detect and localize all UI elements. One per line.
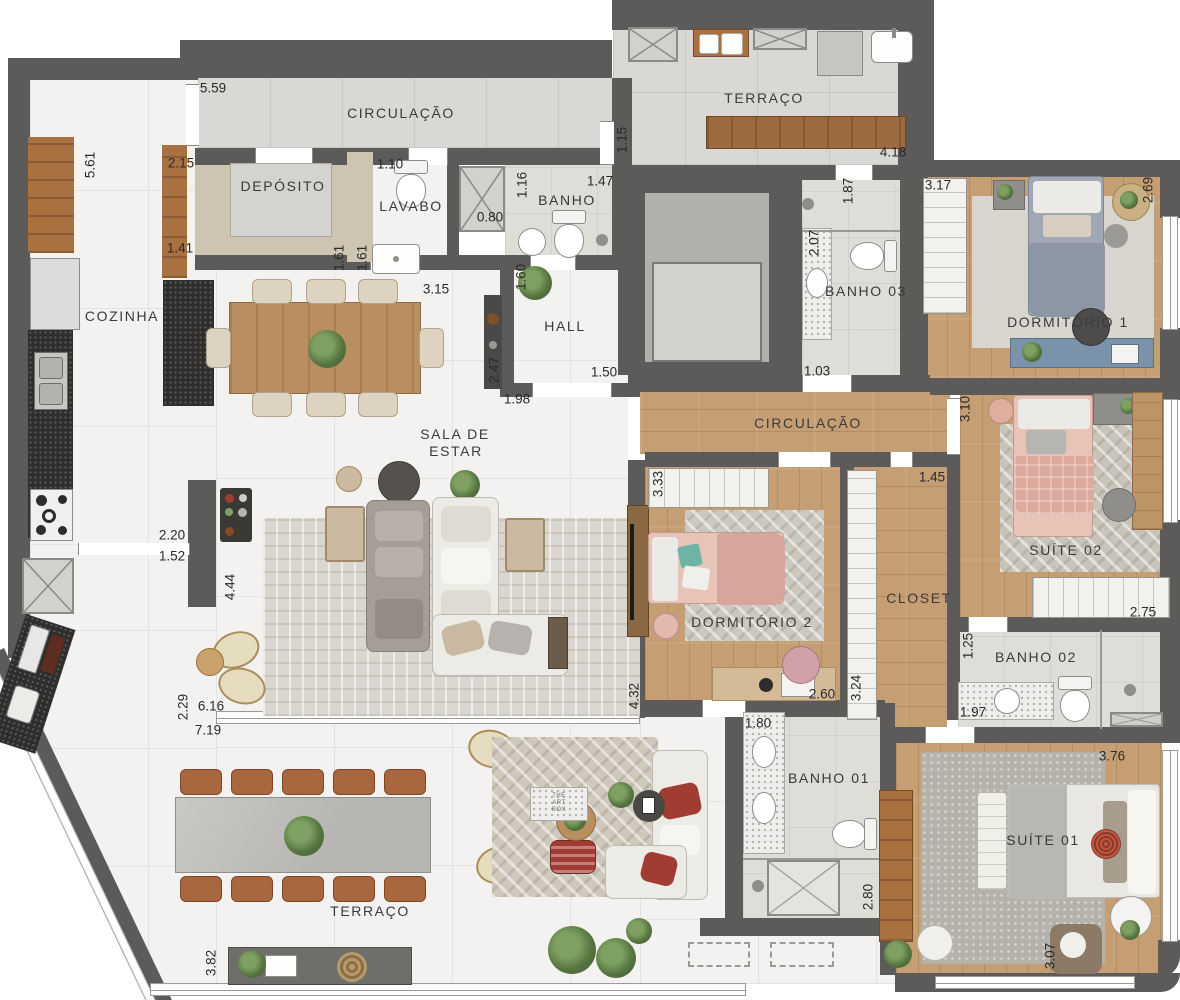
dining-chair [419,328,444,368]
wall [947,455,960,720]
room-label-sala-line2: ESTAR [429,443,483,459]
terrace-table-plant-icon [284,816,324,856]
bed-dormitorio2 [648,532,784,604]
dim-4-18: 4.18 [880,145,906,160]
dim-1-52: 1.52 [159,549,185,564]
room-label-terraco-top: TERRAÇO [724,90,804,106]
dim-1-25: 1.25 [961,633,976,659]
lounge-side-table [196,648,224,676]
banho01-counter [743,712,785,854]
red-pillow [639,850,679,887]
living-plant-icon [450,470,480,500]
room-label-deposito: DEPÓSITO [241,178,326,194]
room-label-lavabo: LAVABO [379,198,443,214]
art-box-text: THE ART BOX [545,793,573,815]
room-label-suite02: SUÍTE 02 [1029,542,1103,558]
wall [628,375,802,392]
wall [612,383,640,397]
wall [188,480,216,607]
wall [500,262,514,383]
shower-banho01 [767,860,840,916]
suite01-plant-icon [884,940,912,968]
square-side-table [325,506,365,562]
toilet-banho [554,224,584,258]
planter-dashed [688,942,750,967]
bed-suite02 [1013,395,1093,537]
toilet-tank [864,818,877,850]
bed-pillows [1033,181,1101,213]
door-suite01 [925,727,975,743]
wall [448,148,612,165]
toilet-banho03 [850,242,884,270]
dim-2-29: 2.29 [176,694,191,720]
dim-2-47: 2.47 [487,357,502,383]
dim-1-97: 1.97 [960,705,986,720]
shower-glass-line [1100,630,1102,729]
wardrobe-dormitorio2 [648,468,769,508]
terrace-plant-icon [596,938,636,978]
dim-2-20: 2.20 [159,528,185,543]
wall [1160,328,1180,400]
window-suite01 [1162,750,1178,942]
suite01-plant-icon [1120,920,1140,940]
dim-1-80: 1.80 [745,716,771,731]
door-circulacao-cozinha [186,84,199,146]
dim-0-80: 0.80 [477,210,503,225]
laundry-appliance [817,31,863,76]
wall [180,40,612,78]
dim-6-16: 6.16 [198,699,224,714]
wall [700,918,896,936]
shower-head-icon [752,880,764,892]
shaft-x-icon [628,27,678,62]
dining-table-plant-icon [308,330,346,368]
striped-red-pillow [550,840,596,874]
room-label-banho01: BANHO 01 [788,770,870,786]
desk-chair-suite02 [1102,488,1136,522]
decor-panel [220,488,252,542]
art-box-console: THE ART BOX [530,787,588,821]
dim-1-10: 1.10 [377,157,403,172]
terrace-chair [282,876,324,902]
bed-cushion [1043,215,1091,237]
photo-side-table [633,790,665,822]
dim-2-15: 2.15 [168,156,194,171]
shower-head-icon [1124,684,1136,696]
chaise-sofa-gray [366,500,430,652]
tv-icon [630,524,634,620]
dining-chair [252,392,292,417]
pouf-pink [652,612,680,640]
dim-4-32: 4.32 [627,683,642,709]
bed-pillows [1018,399,1090,429]
planter-dashed [770,942,834,967]
dim-2-75: 2.75 [1130,605,1156,620]
kitchen-tall-cabinet [28,137,74,253]
s ideboard-plant-icon [238,950,266,978]
toilet-tank [552,210,586,224]
terrace-plant-icon [626,918,652,944]
room-label-circulacao-mid: CIRCULAÇÃO [754,415,862,431]
room-label-banho03: BANHO 03 [825,283,907,299]
dim-3-15: 3.15 [423,282,449,297]
dim-3-07: 3.07 [1043,943,1058,969]
dim-3-33: 3.33 [651,471,666,497]
terrace-chair [231,769,273,795]
dim-1-41: 1.41 [167,241,193,256]
bed-blanket-plaid [1014,456,1094,514]
window-suite01-bottom [935,976,1135,989]
armchair-suite01 [1050,924,1102,974]
room-label-closet: CLOSET [886,590,952,606]
toilet-tank [884,240,897,272]
room-label-dormitorio1: DORMITÓRIO 1 [1007,314,1129,330]
wardrobe-dormitorio1 [923,178,967,314]
dim-1-61a: 1.61 [332,245,347,271]
bed-blanket [1029,243,1105,317]
terrace-chair [333,769,375,795]
desk-suite02 [1132,392,1163,530]
room-label-dormitorio2: DORMITÓRIO 2 [691,614,813,630]
dim-1-50: 1.50 [591,365,617,380]
wall [725,703,743,920]
toilet-banho02 [1060,690,1090,722]
shower-bench-banho02 [1110,712,1163,727]
terrace-plant-icon [548,926,596,974]
room-label-banho02: BANHO 02 [995,649,1077,665]
wall [618,148,632,375]
dim-2-80: 2.80 [861,884,876,910]
shower-head-icon [596,234,608,246]
room-label-banho: BANHO [538,192,596,208]
terrace-chair [384,769,426,795]
wall [447,148,459,260]
shower-head-icon [802,198,814,210]
outdoor-sofa-horizontal [605,845,687,899]
dining-chair [306,279,346,304]
sink-lavabo [372,244,420,274]
sink-banho02 [994,688,1020,714]
dim-3-10: 3.10 [958,396,973,422]
mandala-decor-icon [337,952,367,982]
laundry-shelf [693,29,749,57]
wall [576,255,618,270]
room-label-suite01: SUÍTE 01 [1006,832,1080,848]
wall [920,160,1180,177]
wall [1160,160,1180,218]
desk-lamp-icon [759,678,773,692]
refrigerator [30,258,80,330]
dim-5-61: 5.61 [83,152,98,178]
dim-3-82: 3.82 [204,950,219,976]
cooktop [30,489,73,541]
elevator-car [652,262,762,362]
stool-pink [988,398,1014,424]
side-table-plant-icon [1120,191,1138,209]
wall [8,58,198,80]
room-label-terraco-bottom: TERRAÇO [330,903,410,919]
sink-banho [518,228,546,256]
dim-1-15: 1.15 [615,127,630,153]
wall [947,617,968,632]
floor-plan: THE ART BOX [0,0,1180,1000]
dim-2-60: 2.60 [809,687,835,702]
wall [975,727,1180,743]
wardrobe-suite01 [879,790,913,942]
wall [612,0,934,30]
shaft-x-icon [22,558,74,614]
wall [645,452,778,467]
door-dormitorio2 [778,452,831,467]
bed-blanket [717,533,785,605]
shower-glass-line [743,858,880,860]
bed-dormitorio1 [1028,176,1104,316]
tv-console [627,505,649,637]
window-suite02 [1163,399,1178,523]
dim-7-19: 7.19 [195,723,221,738]
gourmet-sink [5,684,40,724]
room-label-sala-line1: SALA DE [420,426,490,442]
dim-2-69: 2.69 [1141,177,1156,203]
door-banho02 [968,617,1008,632]
terrace-chair [180,876,222,902]
pouf-gray [1104,224,1128,248]
square-side-table [505,518,545,572]
terrace-wood-bench [706,116,906,149]
toilet-tank [1058,676,1092,690]
dim-1-16: 1.16 [515,172,530,198]
dim-4-44: 4.44 [223,574,238,600]
laundry-sink [871,31,913,63]
bed-cushion [682,565,711,590]
dim-1-45: 1.45 [919,470,945,485]
terrace-chair [333,876,375,902]
shaft-x-icon [753,28,807,50]
dining-chair [252,279,292,304]
wall [882,727,925,743]
wall [831,452,890,467]
dining-chair [306,392,346,417]
dim-1-98: 1.98 [504,392,530,407]
toilet-banho01 [832,820,866,848]
wall [913,452,950,467]
round-coffee-table [378,461,420,503]
dining-chair [206,328,231,368]
terrace-chair [231,876,273,902]
wall [612,165,835,180]
room-label-hall: HALL [544,318,585,334]
dim-2-07: 2.07 [807,230,822,256]
deposito-storage [230,163,332,237]
dim-1-61b: 1.61 [355,245,370,271]
room-label-cozinha: COZINHA [85,308,159,324]
door-circulacao-terraco [600,121,614,165]
terrace-chair [384,876,426,902]
wall [852,375,930,392]
wall [1160,520,1180,732]
dim-3-24: 3.24 [849,675,864,701]
dim-1-60: 1.60 [514,264,529,290]
dining-chair [358,279,398,304]
door-banho01 [702,700,746,717]
dim-1-03: 1.03 [804,364,830,379]
dim-3-17: 3.17 [925,178,951,193]
terrace-plant-icon [608,782,634,808]
dim-5-59: 5.59 [200,81,226,96]
sink-banho01 [752,736,776,768]
wall [782,165,802,375]
terrace-chair [282,769,324,795]
desk-chair-dormitorio2 [782,646,820,684]
side-table-small [336,466,362,492]
dim-1-87: 1.87 [841,178,856,204]
sink-banho01 [752,792,776,824]
entry-door-hall [532,383,612,397]
flower-decor-icon [1091,829,1121,859]
room-label-circulacao-top: CIRCULAÇÃO [347,105,455,121]
dining-chair [358,392,398,417]
bed-bench-suite01 [977,792,1007,890]
desk-plant-icon [1022,342,1042,362]
terrace-chair [180,769,222,795]
bed-pillows [652,537,678,601]
door-closet [890,452,913,467]
nightstand-plant-icon [997,184,1013,200]
sofa-side-table-dark [548,617,568,669]
kitchen-sink [34,352,68,410]
dim-1-47: 1.47 [587,174,613,189]
window-dormitorio1 [1162,216,1178,330]
pouf-suite01 [917,925,953,961]
bed-cushion [1026,430,1066,454]
dim-3-76: 3.76 [1099,749,1125,764]
bed-pillows [1128,790,1156,894]
